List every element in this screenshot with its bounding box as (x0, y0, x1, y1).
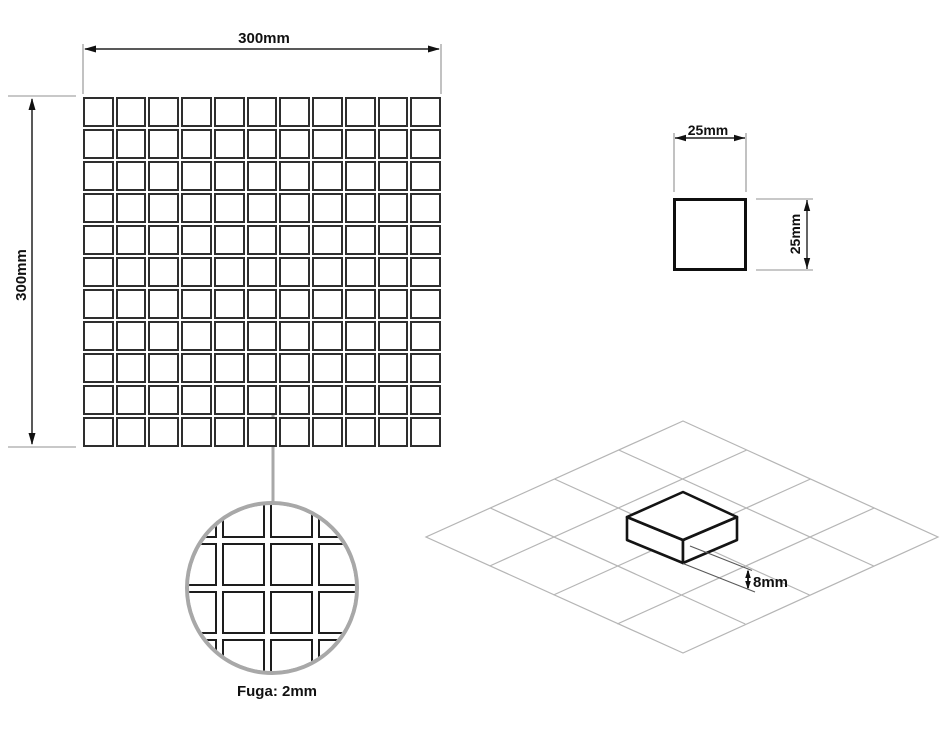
mosaic-tile (214, 289, 245, 319)
magnifier-circle (185, 501, 359, 675)
mosaic-tile (312, 129, 343, 159)
mosaic-tile (247, 417, 278, 447)
magnifier-tile (185, 639, 217, 675)
mosaic-tile (279, 193, 310, 223)
mosaic-tile (247, 193, 278, 223)
mosaic-tile (345, 417, 376, 447)
mosaic-tile (148, 257, 179, 287)
mosaic-tile (214, 97, 245, 127)
magnifier-tile (318, 639, 359, 675)
dimension-tile-width (674, 133, 746, 192)
mosaic-tile (410, 289, 441, 319)
mosaic-tile (410, 97, 441, 127)
mosaic-tile (247, 129, 278, 159)
mosaic-tile (116, 417, 147, 447)
mosaic-tile (410, 225, 441, 255)
tile-width-label: 25mm (648, 122, 768, 138)
mosaic-tile (312, 353, 343, 383)
mosaic-tile (312, 417, 343, 447)
mosaic-tile (378, 385, 409, 415)
mosaic-tile (247, 321, 278, 351)
mosaic-tile (247, 225, 278, 255)
mosaic-tile (116, 161, 147, 191)
mosaic-tile (214, 161, 245, 191)
mosaic-tile (148, 225, 179, 255)
mosaic-tile (148, 385, 179, 415)
mosaic-tile (148, 193, 179, 223)
magnifier-tile (185, 501, 217, 538)
mosaic-tile (345, 289, 376, 319)
mosaic-tile (116, 321, 147, 351)
mosaic-tile (247, 97, 278, 127)
arrowhead-up-icon (804, 200, 810, 211)
mosaic-tile (83, 193, 114, 223)
mosaic-tile (83, 417, 114, 447)
magnifier-tile (318, 543, 359, 586)
mosaic-tile (214, 225, 245, 255)
mosaic-tile (279, 97, 310, 127)
arrowhead-down-icon (29, 433, 36, 445)
mosaic-tile (345, 193, 376, 223)
magnifier-grid (185, 501, 359, 675)
mosaic-tile (247, 257, 278, 287)
mosaic-tile (410, 193, 441, 223)
mosaic-tile (378, 417, 409, 447)
mosaic-tile (116, 385, 147, 415)
mosaic-tile (345, 385, 376, 415)
mosaic-tile (214, 193, 245, 223)
mosaic-tile (181, 129, 212, 159)
mosaic-tile (116, 257, 147, 287)
mosaic-tile (181, 225, 212, 255)
mosaic-tile (247, 161, 278, 191)
mosaic-tile (378, 289, 409, 319)
mosaic-tile (378, 257, 409, 287)
mosaic-tile (279, 417, 310, 447)
arrowhead-right-icon (428, 46, 440, 53)
mosaic-tile (181, 289, 212, 319)
mosaic-tile (312, 193, 343, 223)
dimension-tile-height (756, 199, 813, 270)
mosaic-tile (410, 417, 441, 447)
mosaic-tile (214, 385, 245, 415)
mosaic-tile (181, 97, 212, 127)
mosaic-tile (83, 225, 114, 255)
mosaic-tile (345, 353, 376, 383)
mosaic-tile (148, 353, 179, 383)
mosaic-tile (312, 321, 343, 351)
mosaic-tile (83, 321, 114, 351)
mosaic-tile (345, 97, 376, 127)
mosaic-tile (116, 97, 147, 127)
mosaic-tile (279, 353, 310, 383)
arrowhead-left-icon (84, 46, 96, 53)
mosaic-tile (116, 129, 147, 159)
mosaic-tile (83, 129, 114, 159)
mosaic-tile (312, 225, 343, 255)
mosaic-tile (247, 353, 278, 383)
mosaic-tile (181, 385, 212, 415)
magnifier-tile (270, 501, 313, 538)
mosaic-tile (279, 321, 310, 351)
mosaic-tile (181, 353, 212, 383)
mosaic-tile (214, 321, 245, 351)
mosaic-tile (83, 257, 114, 287)
magnifier-tile (222, 591, 265, 634)
magnifier-tile (270, 591, 313, 634)
magnifier-tile (222, 639, 265, 675)
magnifier-tile (185, 543, 217, 586)
mosaic-tile (312, 97, 343, 127)
mosaic-tile (410, 385, 441, 415)
mosaic-tile (148, 129, 179, 159)
mosaic-tile (279, 129, 310, 159)
mosaic-tile (378, 225, 409, 255)
sheet-width-label: 300mm (184, 31, 344, 47)
magnifier-tile (222, 543, 265, 586)
magnifier-tile (318, 501, 359, 538)
magnifier-tile (270, 639, 313, 675)
mosaic-tile (181, 417, 212, 447)
tile-height-label: 25mm (787, 174, 803, 294)
mosaic-tile (345, 225, 376, 255)
magnifier-tile (270, 543, 313, 586)
mosaic-tile (345, 257, 376, 287)
mosaic-tile (312, 257, 343, 287)
mosaic-tile (116, 225, 147, 255)
mosaic-tile (378, 161, 409, 191)
mosaic-tile (247, 289, 278, 319)
mosaic-tile (83, 385, 114, 415)
technical-drawing-canvas: 300mm 300mm 25mm 25mm Fuga: 2mm 8mm (0, 0, 940, 752)
mosaic-tile (345, 321, 376, 351)
mosaic-tile (312, 385, 343, 415)
magnifier-tile (222, 501, 265, 538)
mosaic-tile (83, 353, 114, 383)
mosaic-tile (410, 129, 441, 159)
mosaic-tile (247, 385, 278, 415)
mosaic-tile (181, 257, 212, 287)
mosaic-tile (410, 257, 441, 287)
mosaic-tile (214, 417, 245, 447)
mosaic-tile (279, 225, 310, 255)
mosaic-tile (410, 161, 441, 191)
mosaic-tile (148, 161, 179, 191)
mosaic-tile (116, 193, 147, 223)
mosaic-tile (214, 257, 245, 287)
dimension-sheet-width (83, 44, 441, 94)
mosaic-tile (116, 289, 147, 319)
mosaic-tile (312, 289, 343, 319)
mosaic-tile (181, 321, 212, 351)
arrowhead-up-icon (29, 98, 36, 110)
mosaic-tile (378, 97, 409, 127)
grout-label: Fuga: 2mm (197, 684, 357, 700)
mosaic-tile (378, 129, 409, 159)
iso-tile-box (627, 492, 737, 563)
mosaic-tile (214, 353, 245, 383)
mosaic-tile (345, 161, 376, 191)
mosaic-tile (83, 161, 114, 191)
mosaic-tile (148, 417, 179, 447)
magnifier-tile (318, 591, 359, 634)
mosaic-tile (116, 353, 147, 383)
mosaic-tile (279, 257, 310, 287)
mosaic-tile (378, 193, 409, 223)
single-tile-detail (673, 198, 747, 271)
mosaic-tile (410, 321, 441, 351)
mosaic-tile (83, 289, 114, 319)
mosaic-tile (279, 385, 310, 415)
mosaic-tile (279, 161, 310, 191)
mosaic-tile (345, 129, 376, 159)
mosaic-tile (378, 321, 409, 351)
mosaic-tile (181, 161, 212, 191)
mosaic-tile (279, 289, 310, 319)
mosaic-tile (181, 193, 212, 223)
mosaic-tile (312, 161, 343, 191)
mosaic-tile (410, 353, 441, 383)
thickness-label: 8mm (753, 575, 788, 591)
mosaic-tile (83, 97, 114, 127)
mosaic-tile (148, 289, 179, 319)
mosaic-sheet (83, 97, 441, 447)
mosaic-tile (214, 129, 245, 159)
magnifier-tile (185, 591, 217, 634)
sheet-height-label: 300mm (14, 195, 30, 355)
mosaic-tile (148, 321, 179, 351)
mosaic-tile (148, 97, 179, 127)
arrowhead-down-icon (804, 258, 810, 269)
mosaic-tile (378, 353, 409, 383)
arrowhead-up-icon (745, 570, 751, 579)
